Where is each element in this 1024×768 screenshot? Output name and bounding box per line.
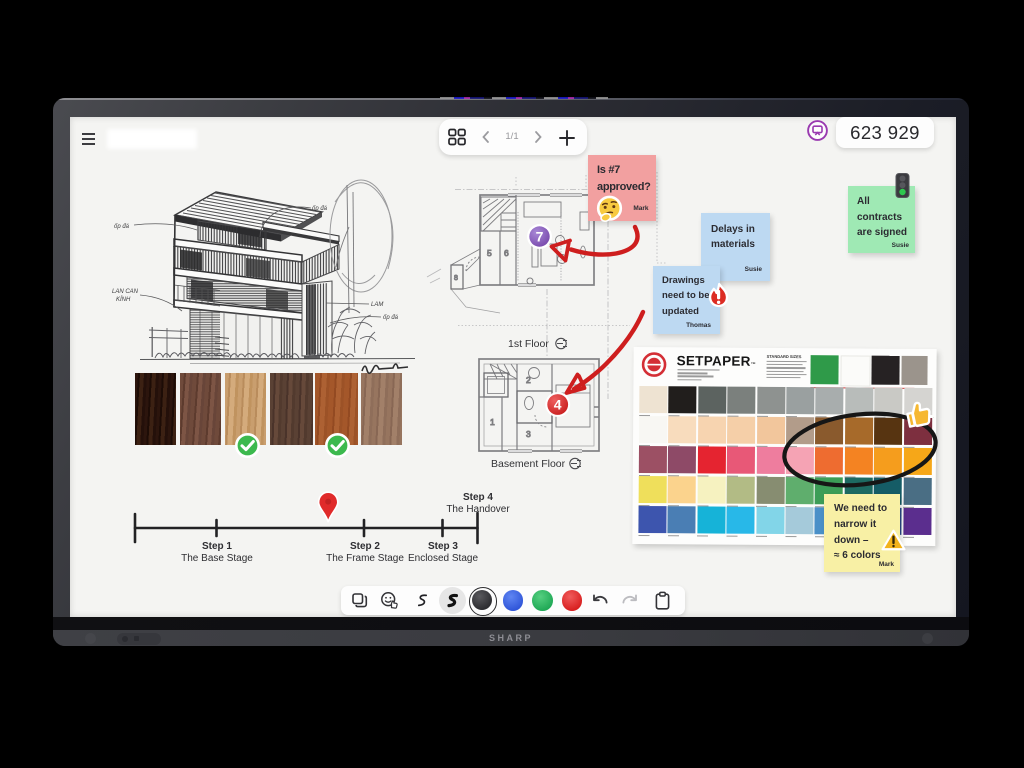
svg-text:4: 4 [554, 397, 562, 413]
svg-text:8: 8 [454, 275, 458, 282]
svg-text:Basement Floor: Basement Floor [491, 458, 566, 470]
svg-text:5: 5 [487, 248, 492, 258]
svg-text:ốp đá: ốp đá [312, 205, 328, 212]
svg-text:6: 6 [504, 248, 509, 258]
svg-text:7: 7 [536, 229, 544, 245]
svg-text:LAN CAN: LAN CAN [112, 289, 139, 295]
svg-text:LAM: LAM [371, 302, 383, 308]
svg-text:2: 2 [526, 375, 531, 385]
svg-text:KÍNH: KÍNH [116, 296, 131, 303]
svg-text:ốp đá: ốp đá [383, 314, 399, 321]
svg-text:1: 1 [490, 417, 495, 427]
svg-text:1st Floor: 1st Floor [508, 338, 549, 350]
svg-text:ốp đá: ốp đá [114, 223, 130, 230]
svg-text:3: 3 [526, 429, 531, 439]
